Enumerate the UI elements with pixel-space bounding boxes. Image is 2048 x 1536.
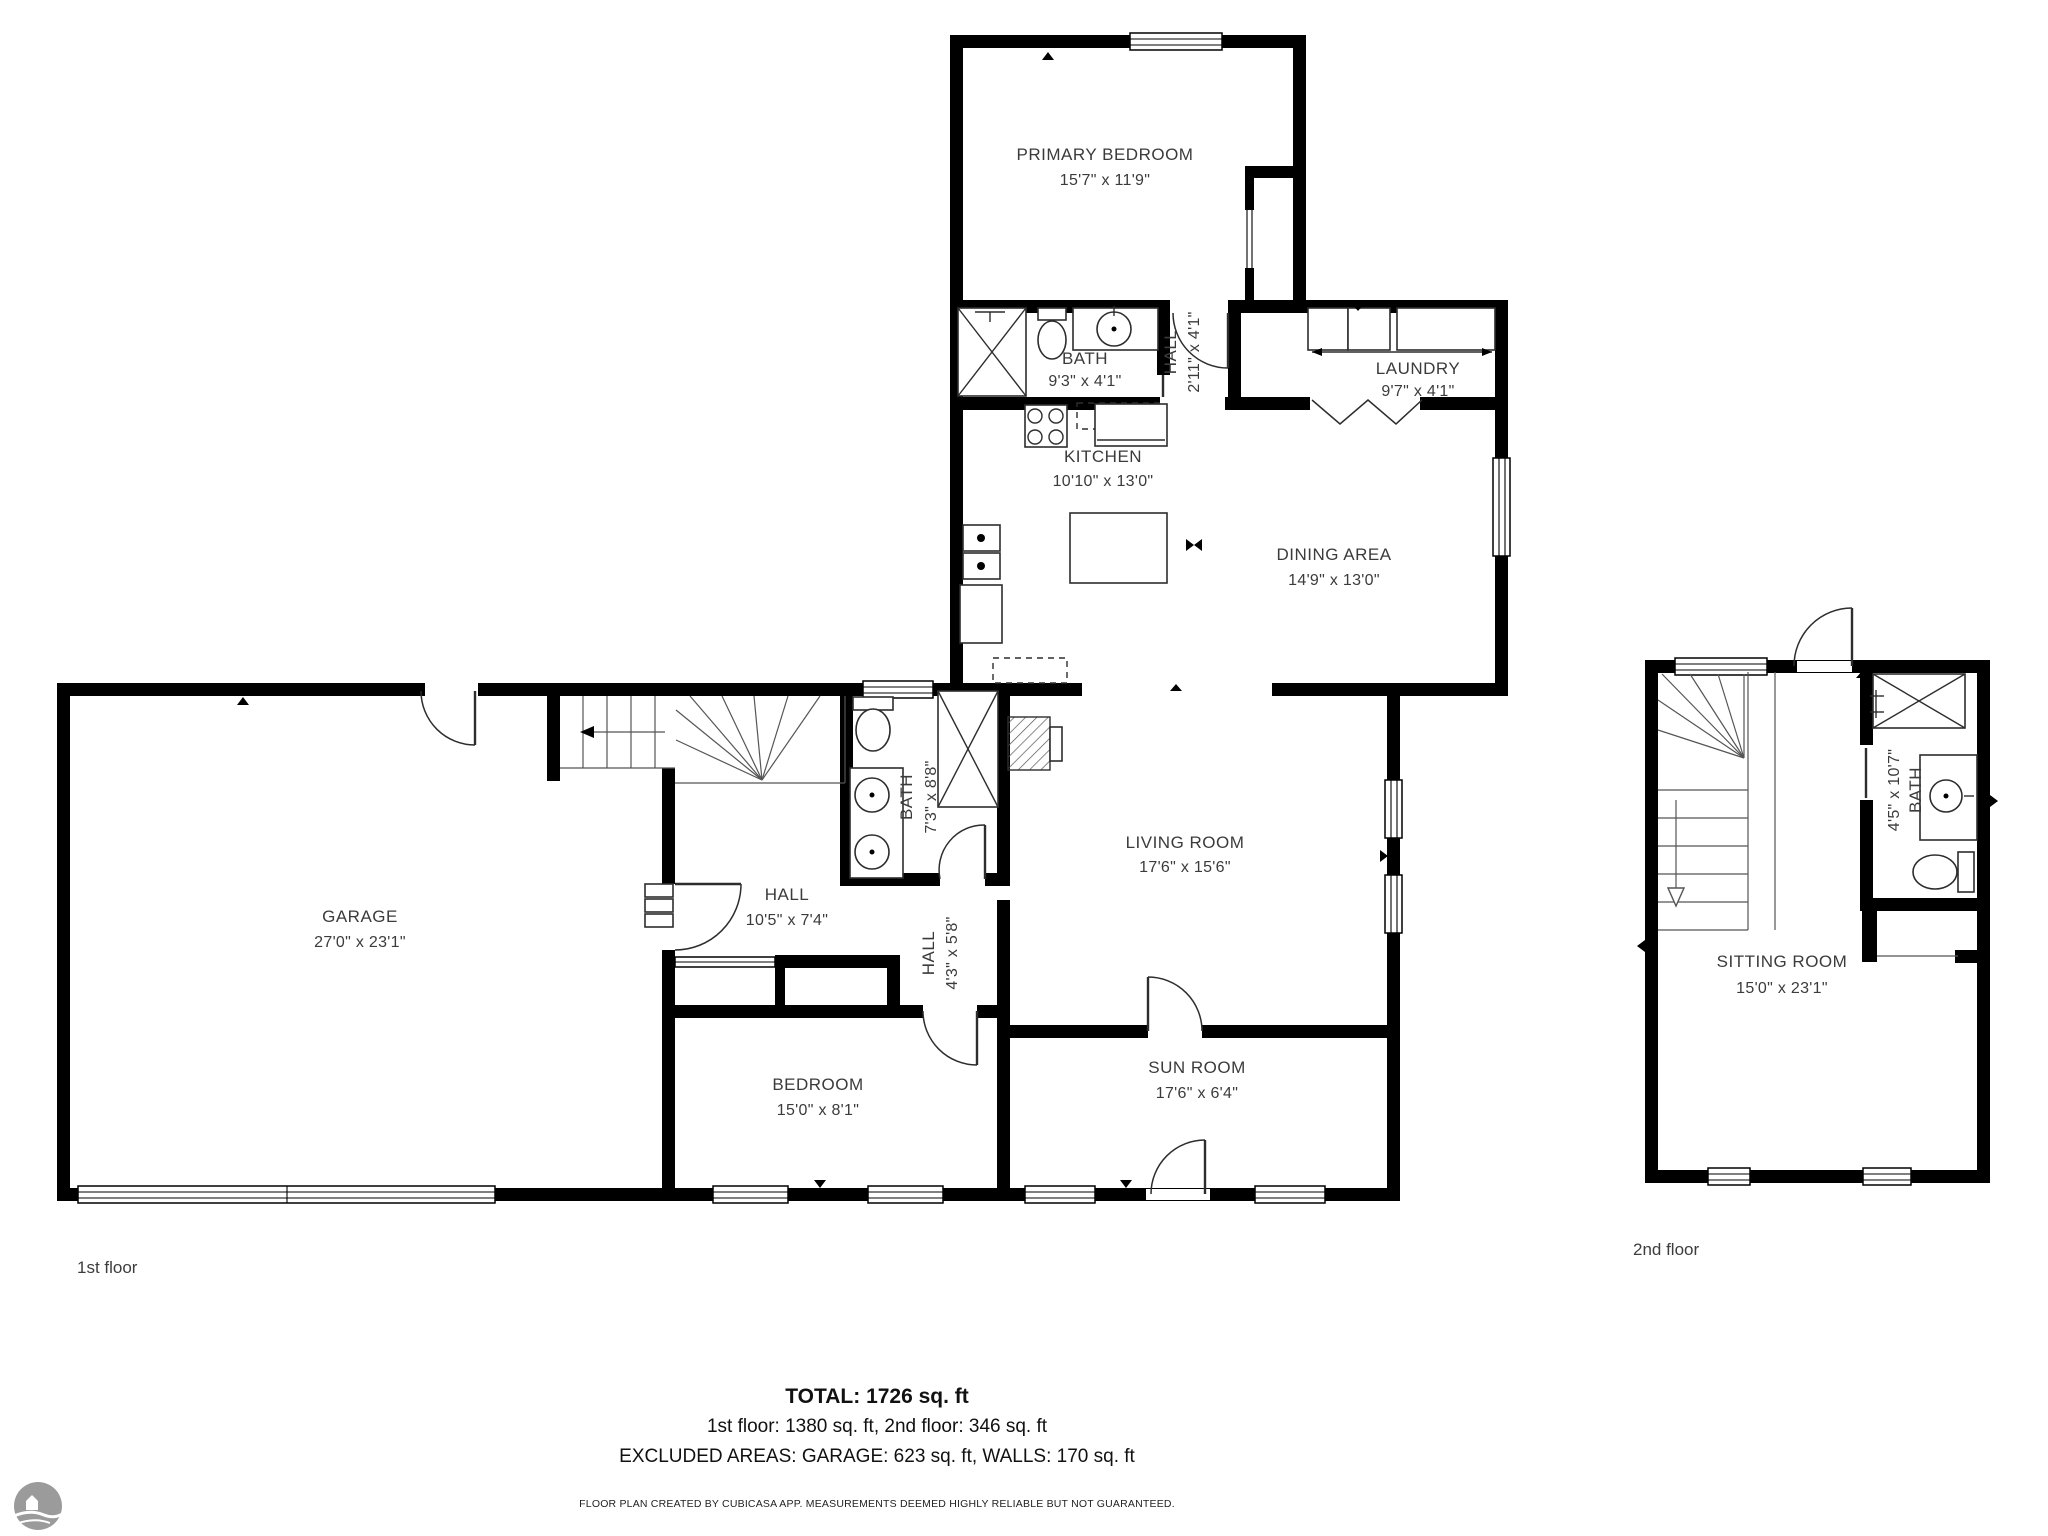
label-kitchen-name: KITCHEN (1064, 447, 1142, 466)
kitchen-appliance-icon (960, 585, 1002, 643)
floor-plan-canvas: PRIMARY BEDROOM 15'7" x 11'9" BATH 9'3" … (0, 0, 2048, 1536)
disclaimer-text: FLOOR PLAN CREATED BY CUBICASA APP. MEAS… (427, 1498, 1327, 1510)
excluded-areas-text: EXCLUDED AREAS: GARAGE: 623 sq. ft, WALL… (427, 1442, 1327, 1472)
window-primary-bedroom (1130, 33, 1222, 50)
room-labels: PRIMARY BEDROOM 15'7" x 11'9" BATH 9'3" … (314, 145, 1925, 1119)
garage-door-strip (78, 1186, 495, 1203)
cooktop-icon (1025, 405, 1067, 447)
door-sunroom-exterior (1151, 1140, 1205, 1194)
toilet-main-icon (853, 697, 893, 751)
label-living-dims: 17'6" x 15'6" (1139, 859, 1231, 876)
door-bath-main (939, 825, 985, 879)
label-hall-upper-name: HALL (1161, 330, 1180, 375)
label-bath-main-name: BATH (897, 774, 916, 820)
fireplace-icon (1008, 717, 1062, 770)
vanity-upper-icon (1073, 306, 1158, 350)
label-bath-upper-name: BATH (1062, 349, 1108, 368)
window-dining (1493, 458, 1510, 556)
lower-cabinet-dashed (993, 658, 1067, 683)
label-living-name: LIVING ROOM (1126, 833, 1245, 852)
label-primary-bedroom-dims: 15'7" x 11'9" (1060, 172, 1150, 189)
shower-second-icon (1873, 674, 1965, 728)
door-laundry-bifold (1312, 400, 1422, 424)
label-sitting-dims: 15'0" x 23'1" (1736, 980, 1828, 997)
ceiling-fan-icon (1186, 539, 1202, 551)
first-floor-walls (57, 35, 1508, 1201)
toilet-second-icon (1913, 852, 1974, 892)
label-garage-name: GARAGE (322, 907, 398, 926)
label-bath-second-name: BATH (1906, 767, 1925, 813)
window-sitting-1 (1708, 1168, 1750, 1185)
first-floor-label: 1st floor (77, 1258, 137, 1278)
door-garage-entry (421, 691, 475, 745)
label-bedroom-name: BEDROOM (772, 1075, 863, 1094)
kitchen-counter-icon (1095, 404, 1167, 446)
vanity-second-icon (1920, 755, 1977, 840)
door-second-entry (1794, 608, 1852, 666)
double-sink-main-icon (850, 768, 903, 878)
window-bedroom-1 (713, 1186, 788, 1203)
label-sunroom-dims: 17'6" x 6'4" (1156, 1085, 1238, 1102)
label-dining-dims: 14'9" x 13'0" (1288, 572, 1380, 589)
door-hall-from-garage (675, 884, 741, 950)
stairs-down-arrow (580, 726, 665, 738)
door-living-sunroom (1148, 977, 1202, 1031)
door-bedroom (923, 1011, 977, 1065)
floor-areas-text: 1st floor: 1380 sq. ft, 2nd floor: 346 s… (427, 1412, 1327, 1442)
shower-upper-icon (958, 308, 1026, 396)
label-dining-name: DINING AREA (1276, 545, 1391, 564)
label-hall-small-name: HALL (919, 931, 938, 976)
label-bath-upper-dims: 9'3" x 4'1" (1048, 373, 1121, 390)
window-living-1 (1385, 780, 1402, 838)
label-kitchen-dims: 10'10" x 13'0" (1053, 473, 1154, 490)
first-floor-doors (421, 313, 1422, 1194)
staircase-second-floor (1658, 672, 1775, 930)
stairs-down-arrow-second (1668, 800, 1684, 906)
area-summary: TOTAL: 1726 sq. ft 1st floor: 1380 sq. f… (427, 1382, 1327, 1510)
label-bath-main-dims: 7'3" x 8'8" (923, 760, 940, 833)
label-bath-second-dims: 4'5" x 10'7" (1886, 749, 1903, 831)
window-bath-main (863, 681, 933, 698)
cubicasa-logo-icon (14, 1482, 62, 1530)
label-garage-dims: 27'0" x 23'1" (314, 934, 406, 951)
window-sitting-2 (1863, 1168, 1911, 1185)
total-area-text: TOTAL: 1726 sq. ft (427, 1382, 1327, 1412)
window-bedroom-2 (868, 1186, 943, 1203)
floor-plan-page: PRIMARY BEDROOM 15'7" x 11'9" BATH 9'3" … (0, 0, 2048, 1536)
window-sunroom-2 (1255, 1186, 1325, 1203)
label-sunroom-name: SUN ROOM (1148, 1058, 1246, 1077)
window-living-2 (1385, 875, 1402, 933)
label-laundry-dims: 9'7" x 4'1" (1381, 383, 1454, 400)
label-primary-bedroom-name: PRIMARY BEDROOM (1017, 145, 1194, 164)
kitchen-sink-icon (963, 525, 1000, 579)
laundry-machines-icon (1308, 308, 1495, 350)
label-hall-upper-dims: 2'11" x 4'1" (1186, 311, 1203, 392)
window-second-top (1675, 658, 1767, 675)
shower-main-icon (938, 691, 998, 807)
label-hall-main-dims: 10'5" x 7'4" (746, 912, 828, 929)
label-laundry-name: LAUNDRY (1376, 359, 1460, 378)
label-hall-small-dims: 4'3" x 5'8" (944, 916, 961, 989)
kitchen-island-icon (1070, 513, 1167, 583)
label-hall-main-name: HALL (765, 885, 810, 904)
label-bedroom-dims: 15'0" x 8'1" (777, 1102, 859, 1119)
closet-slider-bedroom (675, 957, 775, 967)
window-sunroom-1 (1025, 1186, 1095, 1203)
second-floor-walls (1645, 660, 1990, 1183)
second-floor-label: 2nd floor (1633, 1240, 1699, 1260)
label-sitting-name: SITTING ROOM (1717, 952, 1848, 971)
